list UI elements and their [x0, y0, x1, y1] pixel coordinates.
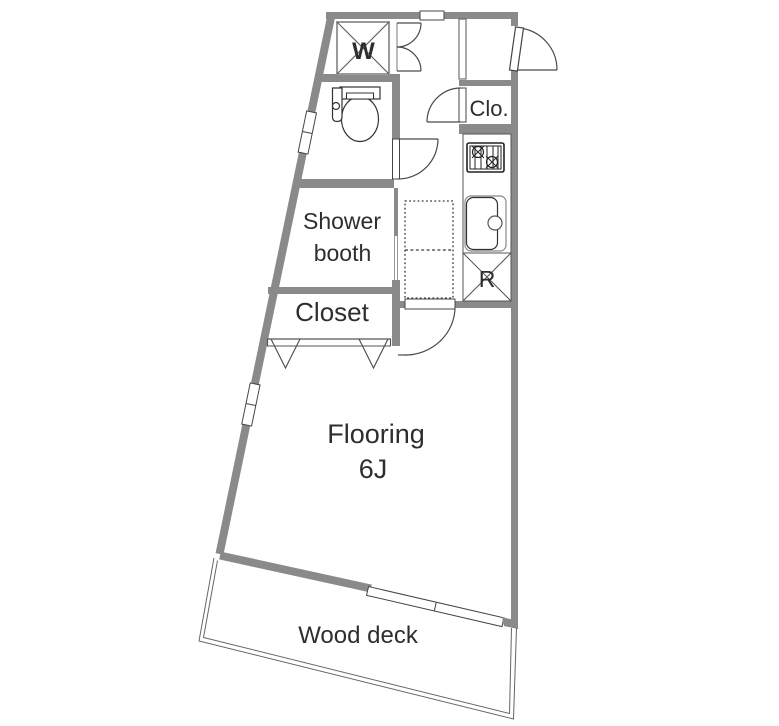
svg-text:Shower: Shower [303, 208, 381, 234]
svg-text:R: R [479, 266, 496, 292]
svg-text:booth: booth [314, 240, 372, 266]
svg-text:6J: 6J [359, 454, 388, 484]
svg-text:Flooring: Flooring [327, 419, 425, 449]
svg-text:Wood deck: Wood deck [298, 622, 419, 649]
svg-text:Clo.: Clo. [469, 96, 508, 121]
svg-text:Closet: Closet [295, 297, 369, 327]
svg-text:W: W [352, 38, 375, 65]
